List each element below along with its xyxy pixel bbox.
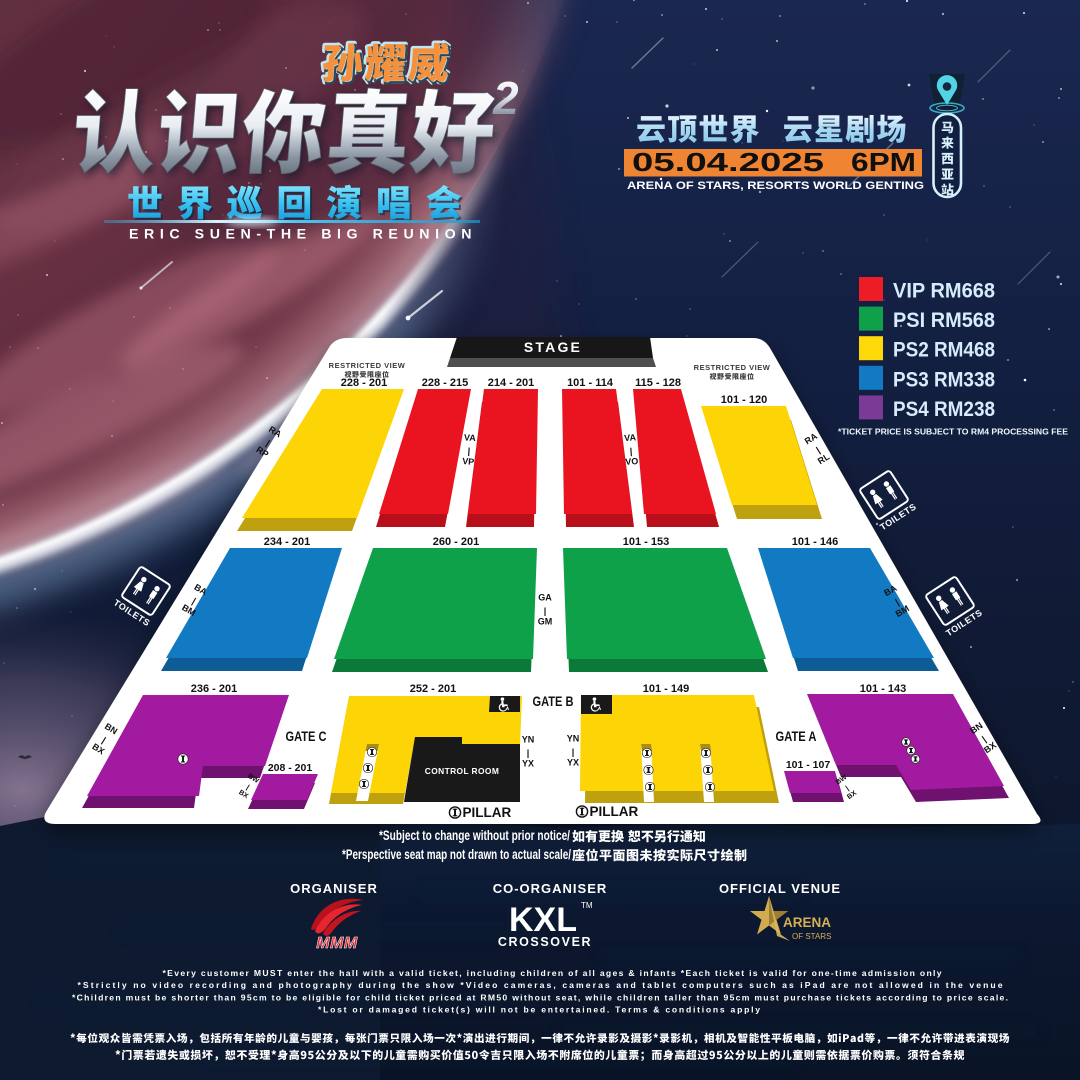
svg-text:ARENA: ARENA <box>783 915 831 930</box>
svg-text:KXL: KXL <box>509 901 577 939</box>
svg-text:PSI RM568: PSI RM568 <box>893 309 995 332</box>
svg-text:*Every customer MUST enter the: *Every customer MUST enter the hall with… <box>163 968 942 978</box>
svg-text:228 - 201: 228 - 201 <box>341 377 387 389</box>
svg-text:GM: GM <box>538 617 553 627</box>
svg-text:|: | <box>572 747 575 757</box>
svg-text:GATE B: GATE B <box>533 694 574 709</box>
svg-text:VIP RM668: VIP RM668 <box>893 280 995 303</box>
svg-text:MMM: MMM <box>316 935 358 952</box>
svg-text:101 - 149: 101 - 149 <box>643 683 689 695</box>
svg-text:ORGANISER: ORGANISER <box>290 881 378 896</box>
svg-text:PILLAR: PILLAR <box>463 805 512 820</box>
svg-text:CO-ORGANISER: CO-ORGANISER <box>493 881 608 896</box>
svg-text:RESTRICTED VIEW: RESTRICTED VIEW <box>694 363 771 372</box>
svg-text:2: 2 <box>492 72 519 124</box>
svg-text:VO: VO <box>625 456 639 467</box>
svg-text:RESTRICTED VIEW: RESTRICTED VIEW <box>329 361 406 370</box>
svg-text:VA: VA <box>464 432 477 443</box>
svg-text:*Subject to change without pri: *Subject to change without prior notice/ <box>379 828 570 843</box>
svg-text:214 - 201: 214 - 201 <box>488 377 534 389</box>
svg-text:GA: GA <box>538 593 552 603</box>
svg-text:208 - 201: 208 - 201 <box>268 762 313 774</box>
svg-text:236 - 201: 236 - 201 <box>191 683 237 695</box>
svg-text:GATE C: GATE C <box>286 729 327 744</box>
svg-text:YX: YX <box>567 758 579 768</box>
svg-text:VA: VA <box>624 432 637 443</box>
svg-text:GATE A: GATE A <box>776 729 817 744</box>
svg-text:YX: YX <box>522 759 534 769</box>
svg-text:101 - 114: 101 - 114 <box>567 377 614 389</box>
svg-text:CROSSOVER: CROSSOVER <box>498 935 592 949</box>
svg-text:115 - 128: 115 - 128 <box>635 377 681 389</box>
svg-text:PS3 RM338: PS3 RM338 <box>893 368 995 391</box>
svg-text:PS2 RM468: PS2 RM468 <box>893 339 995 362</box>
svg-text:YN: YN <box>567 734 580 744</box>
svg-text:VP: VP <box>462 456 475 467</box>
svg-text:6PM: 6PM <box>851 149 916 177</box>
svg-text:*TICKET PRICE IS SUBJECT TO RM: *TICKET PRICE IS SUBJECT TO RM4 PROCESSI… <box>838 427 1068 437</box>
svg-text:*Lost or damaged ticket(s) wil: *Lost or damaged ticket(s) will not be e… <box>318 1005 760 1015</box>
svg-text:101 - 107: 101 - 107 <box>786 759 831 771</box>
svg-text:|: | <box>544 606 547 616</box>
svg-text:260 - 201: 260 - 201 <box>433 536 479 548</box>
svg-text:*Strictly no video recording a: *Strictly no video recording and photogr… <box>78 980 1003 990</box>
svg-text:OFFICIAL VENUE: OFFICIAL VENUE <box>719 881 841 896</box>
svg-text:TM: TM <box>581 901 593 910</box>
svg-text:*Perspective seat map not draw: *Perspective seat map not drawn to actua… <box>342 847 571 862</box>
svg-text:PS4 RM238: PS4 RM238 <box>893 398 995 421</box>
svg-text:252 - 201: 252 - 201 <box>410 683 456 695</box>
svg-text:ARENA OF STARS, RESORTS WORLD: ARENA OF STARS, RESORTS WORLD GENTING <box>627 180 924 192</box>
svg-text:234 - 201: 234 - 201 <box>264 536 310 548</box>
svg-text:|: | <box>527 748 530 758</box>
svg-text:PILLAR: PILLAR <box>590 804 639 819</box>
svg-text:YN: YN <box>522 735 535 745</box>
svg-text:101 - 146: 101 - 146 <box>792 536 838 548</box>
svg-text:101 - 120: 101 - 120 <box>721 394 767 406</box>
svg-text:OF STARS: OF STARS <box>792 932 831 941</box>
svg-text:05.04.2025: 05.04.2025 <box>632 149 824 177</box>
svg-text:STAGE: STAGE <box>524 339 582 355</box>
svg-text:101 - 143: 101 - 143 <box>860 683 906 695</box>
svg-text:CONTROL ROOM: CONTROL ROOM <box>425 766 499 776</box>
svg-text:228 - 215: 228 - 215 <box>422 377 468 389</box>
svg-text:ERIC SUEN-THE BIG REUNION: ERIC SUEN-THE BIG REUNION <box>129 226 477 242</box>
svg-text:101 - 153: 101 - 153 <box>623 536 669 548</box>
